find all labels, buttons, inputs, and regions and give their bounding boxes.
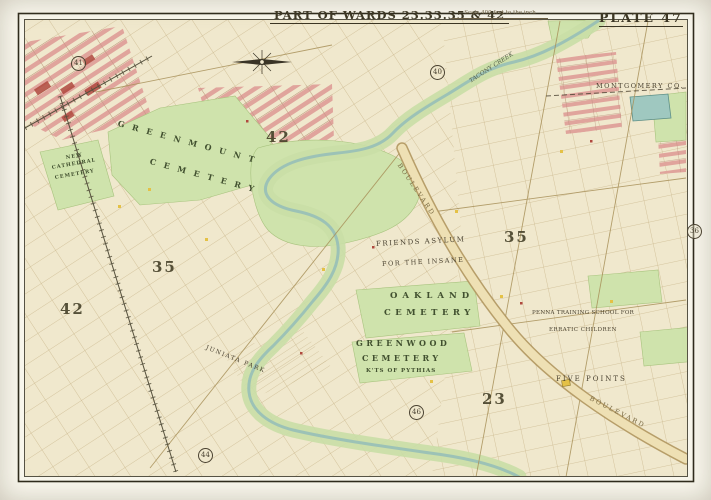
plate-ref-41: 41	[71, 56, 86, 71]
plate-ref-46: 46	[409, 405, 424, 420]
plate-number: PLATE 47	[599, 10, 683, 27]
ward-number-35-left: 35	[152, 258, 177, 276]
label-greenwood-cemetery-1: GREENWOOD	[356, 338, 450, 348]
scale-note: Scale 400 feet to the inch	[452, 10, 548, 19]
reservoir	[630, 94, 671, 121]
label-greenwood-cemetery-3: K'TS OF PYTHIAS	[366, 368, 436, 374]
ward-number-42-left: 42	[60, 300, 85, 318]
label-oakland-cemetery-2: CEMETERY	[384, 308, 475, 318]
label-montgomery-county: MONTGOMERY CO.	[596, 82, 684, 90]
atlas-page: PART OF WARDS 23.33.35 & 42 Scale 400 fe…	[0, 0, 711, 500]
green-patch-east-2	[640, 326, 708, 366]
ward-number-35-right: 35	[504, 228, 529, 246]
green-patch-east-1	[588, 270, 662, 308]
ward-number-23: 23	[482, 390, 507, 408]
label-training-school-2: ERRATIC CHILDREN	[549, 327, 617, 333]
plate-ref-40: 40	[430, 65, 445, 80]
label-five-points: FIVE POINTS	[556, 375, 627, 383]
plate-ref-36: 36	[687, 224, 702, 239]
map-canvas	[0, 0, 711, 500]
label-training-school-1: PENNA TRAINING SCHOOL FOR	[532, 310, 634, 316]
label-greenwood-cemetery-2: CEMETERY	[362, 353, 442, 363]
label-oakland-cemetery-1: OAKLAND	[390, 291, 474, 301]
ward-number-42-top: 42	[266, 128, 291, 146]
plate-ref-44: 44	[198, 448, 213, 463]
